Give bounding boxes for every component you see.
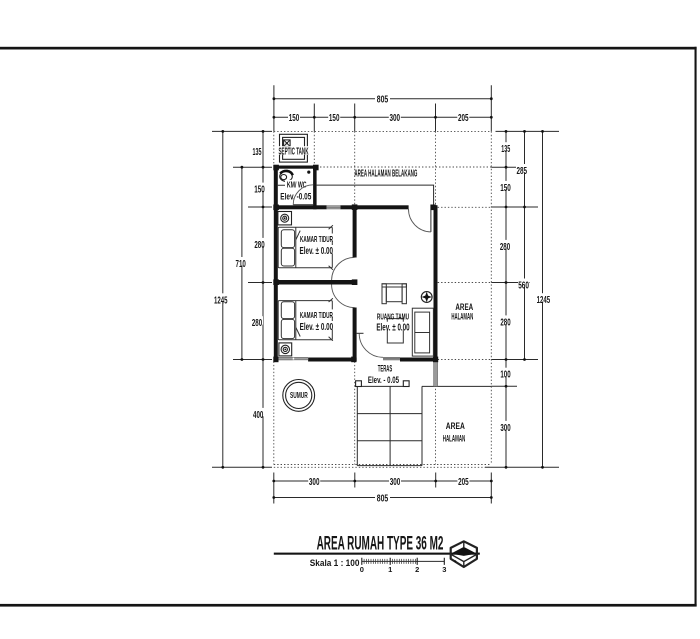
svg-text:3: 3 xyxy=(442,565,446,574)
svg-text:150: 150 xyxy=(254,184,265,196)
svg-text:AREA: AREA xyxy=(446,421,465,431)
svg-text:300: 300 xyxy=(390,476,401,488)
svg-text:205: 205 xyxy=(458,112,469,124)
svg-text:AREA RUMAH TYPE 36 M2: AREA RUMAH TYPE 36 M2 xyxy=(317,533,444,554)
svg-text:SUMUR: SUMUR xyxy=(290,391,308,400)
svg-text:135: 135 xyxy=(253,146,262,158)
svg-text:805: 805 xyxy=(377,492,389,504)
svg-text:285: 285 xyxy=(517,165,528,177)
svg-text:400: 400 xyxy=(253,409,263,421)
svg-text:205: 205 xyxy=(458,476,469,488)
svg-text:150: 150 xyxy=(329,112,340,124)
svg-text:AREA HALAMAN BELAKANG: AREA HALAMAN BELAKANG xyxy=(354,168,417,179)
svg-text:280: 280 xyxy=(252,317,262,329)
svg-text:1: 1 xyxy=(388,565,392,574)
svg-text:Elev. ± 0.00: Elev. ± 0.00 xyxy=(300,246,334,257)
svg-text:HALAMAN: HALAMAN xyxy=(451,312,473,322)
svg-text:Elev. - 0.05: Elev. - 0.05 xyxy=(368,375,400,386)
svg-text:2: 2 xyxy=(415,565,419,574)
svg-text:0: 0 xyxy=(360,565,364,574)
svg-text:Elev. ± 0.00: Elev. ± 0.00 xyxy=(376,323,410,334)
svg-text:RUANG TAMU: RUANG TAMU xyxy=(377,312,409,322)
svg-text:Elev. ± 0.00: Elev. ± 0.00 xyxy=(300,322,334,333)
svg-text:280: 280 xyxy=(500,241,510,253)
svg-text:135: 135 xyxy=(501,143,510,155)
svg-text:AREA: AREA xyxy=(455,302,473,312)
svg-text:1245: 1245 xyxy=(214,294,228,306)
svg-text:Elev. -0.05: Elev. -0.05 xyxy=(280,191,311,202)
svg-text:300: 300 xyxy=(500,422,510,434)
svg-text:300: 300 xyxy=(390,112,401,124)
svg-text:1245: 1245 xyxy=(537,294,551,306)
svg-text:280: 280 xyxy=(500,316,510,328)
svg-text:Skala 1 : 100: Skala 1 : 100 xyxy=(310,558,360,569)
svg-text:805: 805 xyxy=(377,94,389,106)
svg-text:710: 710 xyxy=(236,258,246,270)
svg-text:150: 150 xyxy=(289,112,300,124)
svg-text:KAMAR TIDUR: KAMAR TIDUR xyxy=(300,234,333,244)
svg-text:150: 150 xyxy=(500,182,511,194)
svg-text:KAMAR TIDUR: KAMAR TIDUR xyxy=(300,310,333,320)
svg-text:TERAS: TERAS xyxy=(378,363,393,374)
svg-text:300: 300 xyxy=(309,476,320,488)
svg-text:HALAMAN: HALAMAN xyxy=(443,434,466,444)
svg-text:KM/ WC: KM/ WC xyxy=(287,180,307,190)
svg-text:560: 560 xyxy=(518,279,529,291)
svg-text:100: 100 xyxy=(500,369,510,381)
svg-text:280: 280 xyxy=(254,239,264,251)
svg-text:SEPTIC TANK: SEPTIC TANK xyxy=(279,146,309,157)
